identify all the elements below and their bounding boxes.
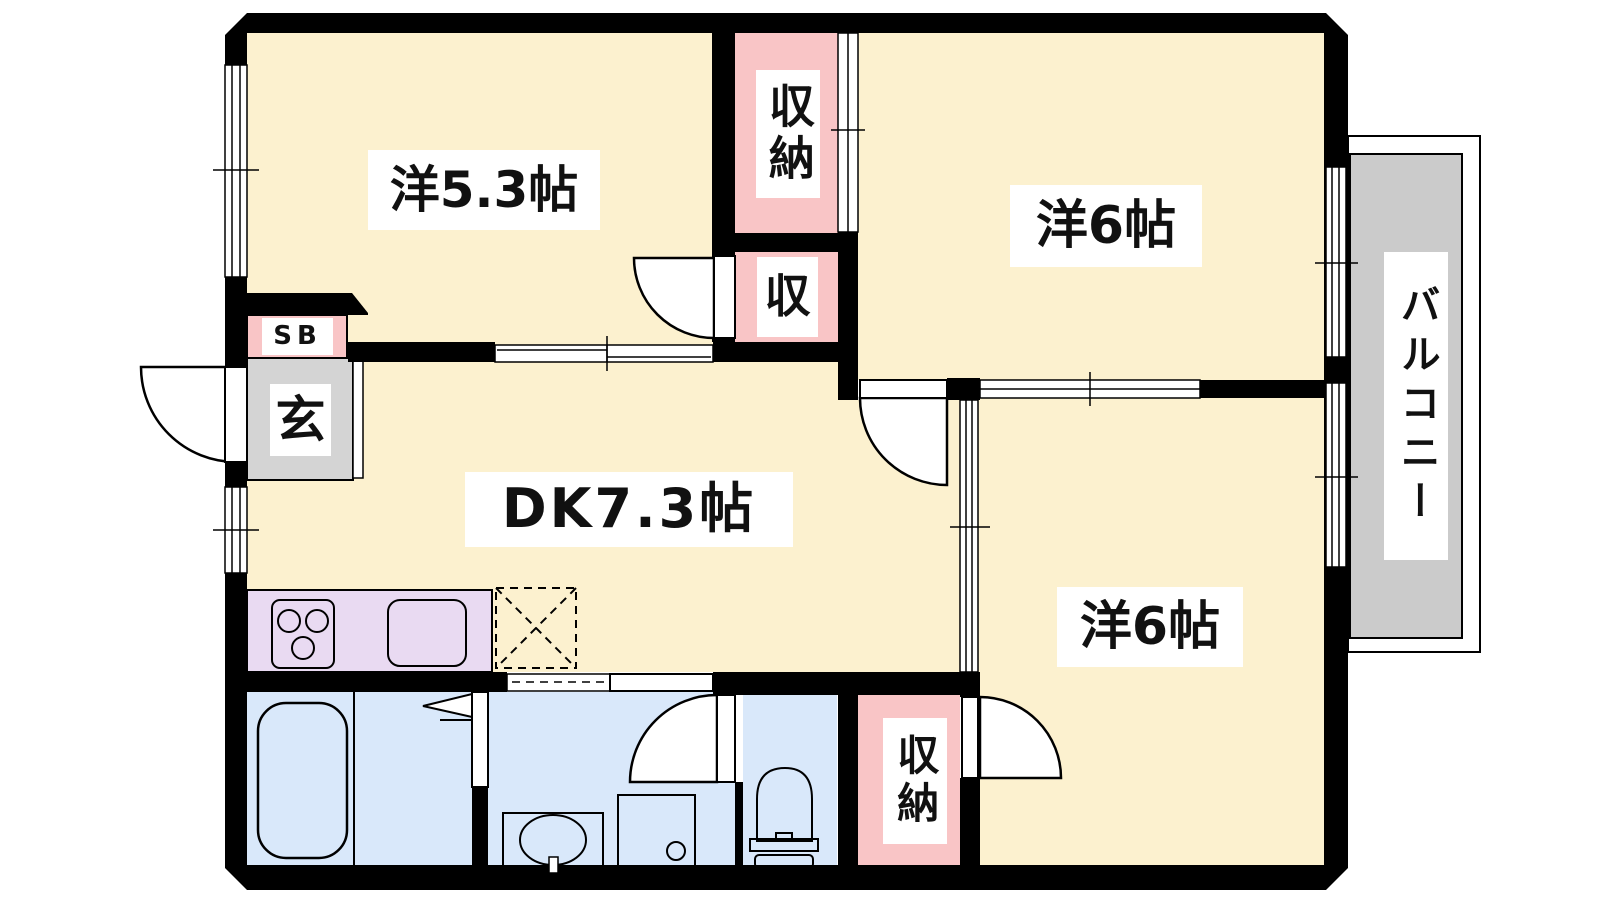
entrance-label: 玄 [270, 384, 331, 456]
closet-mid-label: 収 [757, 257, 818, 337]
room-east-label: 洋6帖 [1010, 185, 1202, 267]
dk-label: DK7.3帖 [465, 472, 793, 547]
room-south-label: 洋6帖 [1057, 587, 1243, 667]
shoe-box-label: SB [262, 318, 333, 355]
toilet-floor [743, 695, 837, 868]
room-west-label: 洋5.3帖 [368, 150, 600, 230]
entrance-step [353, 360, 363, 478]
entrance-door [141, 367, 247, 462]
closet-south-label: 収納 [883, 718, 947, 844]
closet-north-label: 収納 [756, 70, 820, 198]
floor-plan: 洋5.3帖 収納 収 洋6帖 DK7.3帖 SB 玄 洋6帖 収納 バルコニー [0, 0, 1600, 900]
sliding-door-dk-washroom [507, 674, 713, 691]
balcony-label: バルコニー [1384, 252, 1448, 560]
bathroom-floor [247, 692, 472, 868]
